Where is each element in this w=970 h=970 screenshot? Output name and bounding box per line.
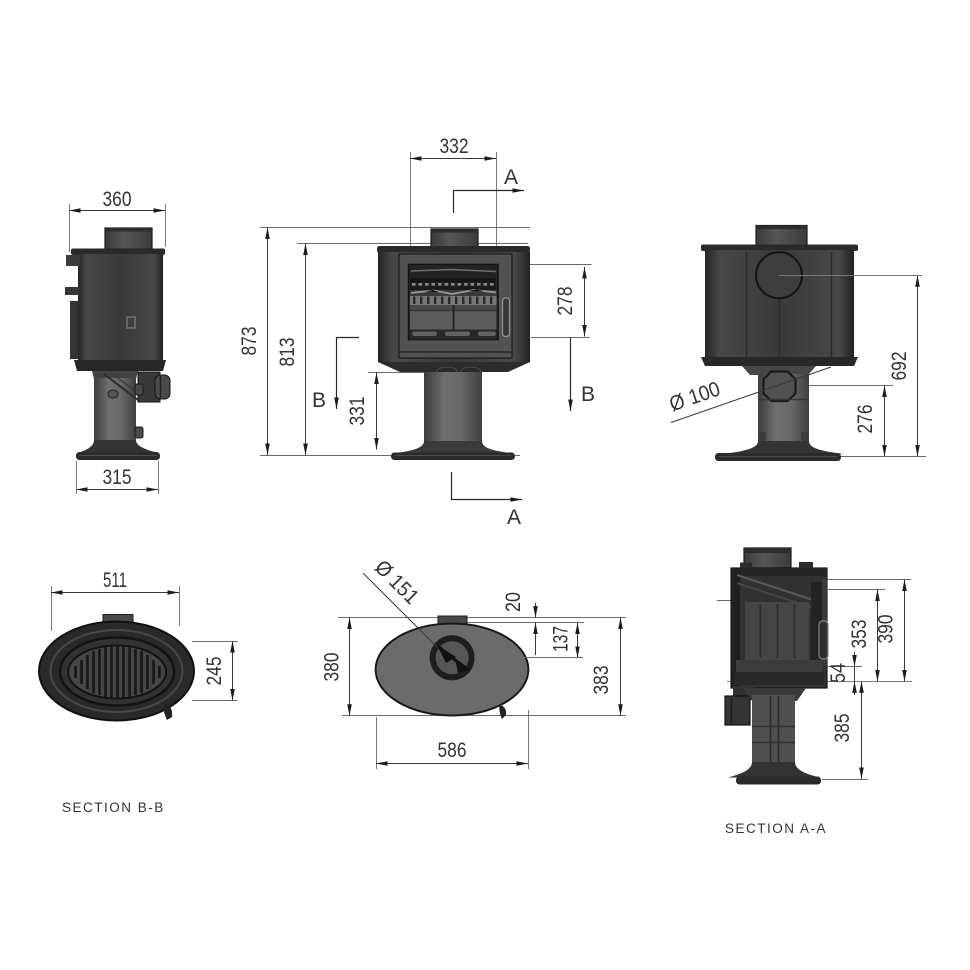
svg-text:A: A [507, 506, 521, 529]
svg-text:331: 331 [346, 397, 369, 426]
svg-text:245: 245 [203, 657, 226, 686]
svg-text:360: 360 [103, 188, 132, 211]
svg-text:383: 383 [590, 666, 613, 695]
svg-text:390: 390 [875, 615, 898, 644]
svg-text:276: 276 [854, 405, 877, 434]
svg-text:315: 315 [103, 466, 132, 489]
svg-text:353: 353 [848, 620, 871, 649]
svg-text:511: 511 [103, 569, 127, 592]
svg-text:54: 54 [827, 663, 850, 683]
svg-text:A: A [504, 166, 518, 189]
svg-text:692: 692 [888, 352, 911, 381]
svg-text:B: B [581, 383, 595, 406]
svg-text:380: 380 [321, 653, 344, 682]
svg-text:278: 278 [554, 287, 577, 316]
svg-text:813: 813 [276, 338, 299, 367]
svg-text:385: 385 [831, 714, 854, 743]
svg-text:586: 586 [438, 739, 467, 762]
svg-text:B: B [312, 389, 326, 412]
svg-text:20: 20 [502, 592, 525, 612]
svg-text:873: 873 [238, 327, 261, 356]
svg-text:SECTION A-A: SECTION A-A [725, 821, 827, 836]
svg-text:SECTION B-B: SECTION B-B [62, 800, 165, 815]
svg-text:137: 137 [550, 626, 573, 652]
svg-text:332: 332 [440, 135, 469, 158]
